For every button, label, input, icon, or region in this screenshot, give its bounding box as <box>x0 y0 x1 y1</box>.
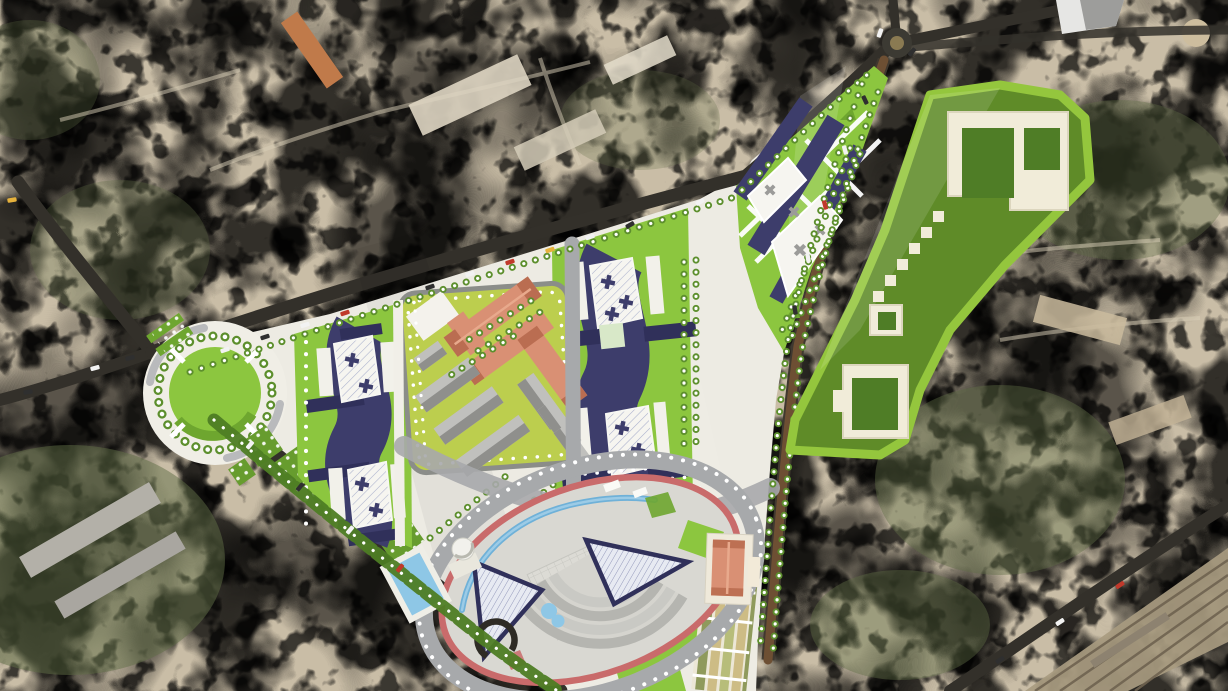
courtyard-building-mid <box>870 305 902 335</box>
map-canvas[interactable] <box>0 0 1228 691</box>
white-parcel <box>334 336 380 402</box>
white-parcel <box>348 462 392 528</box>
roundabout <box>882 28 912 58</box>
white-parcel <box>590 258 642 328</box>
white-path <box>398 300 400 546</box>
courtyard-building-south <box>833 365 908 438</box>
pale-green-court <box>599 323 625 349</box>
masterplan-aerial-svg <box>0 0 1228 691</box>
courtyard-building-north <box>948 112 1068 210</box>
